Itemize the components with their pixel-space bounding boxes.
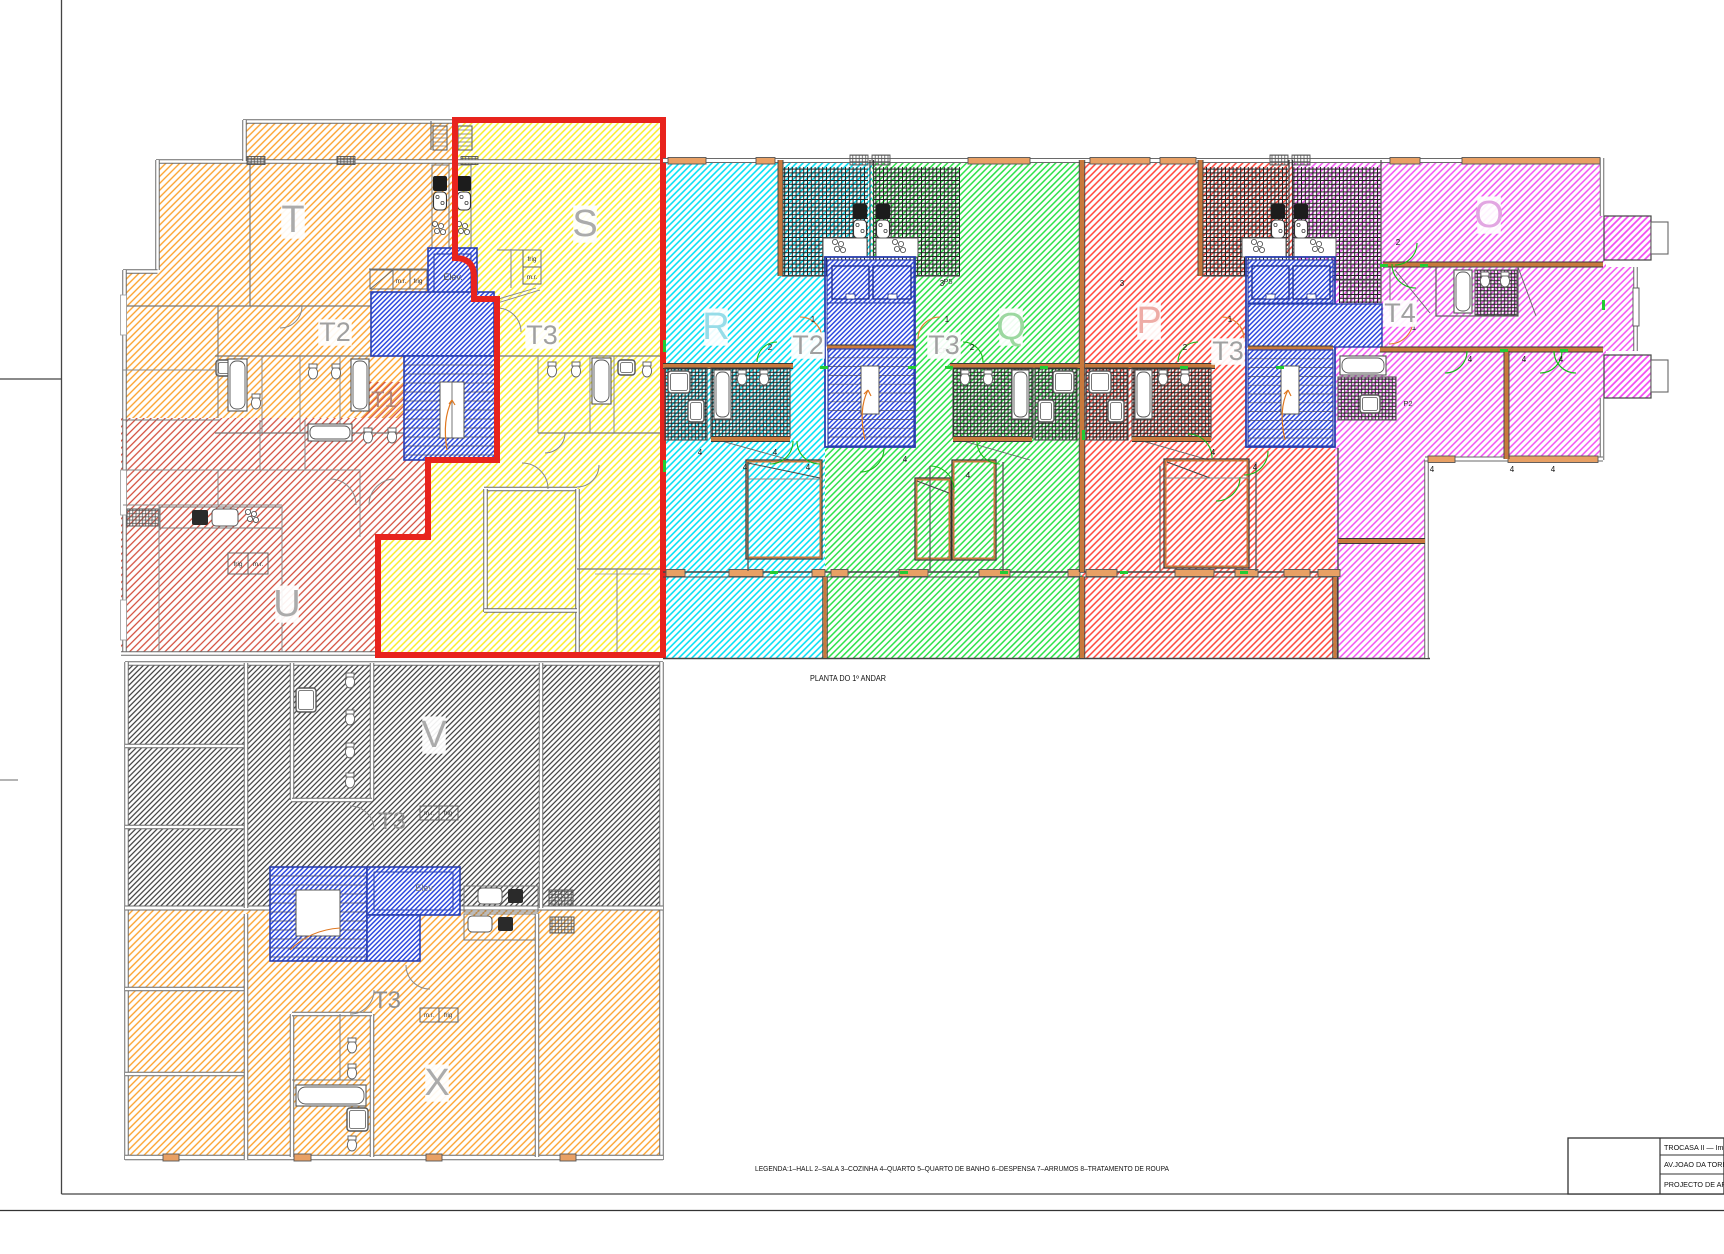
svg-text:3: 3 [940, 279, 945, 288]
svg-text:m.r.: m.r. [527, 274, 538, 281]
svg-text:frig: frig [444, 1013, 452, 1019]
svg-text:T2: T2 [319, 317, 351, 347]
svg-text:4: 4 [903, 455, 908, 464]
svg-text:V: V [421, 714, 447, 756]
svg-text:T1: T1 [371, 387, 397, 412]
svg-text:frig: frig [527, 256, 536, 263]
svg-text:m.r.: m.r. [424, 1013, 434, 1019]
svg-text:O: O [1474, 194, 1504, 236]
svg-text:2: 2 [970, 343, 975, 352]
svg-text:frig: frig [233, 561, 242, 568]
svg-text:X: X [424, 1062, 449, 1104]
svg-text:1: 1 [945, 315, 950, 324]
svg-text:2: 2 [768, 343, 773, 352]
svg-text:P2: P2 [1403, 399, 1412, 408]
svg-text:T: T [281, 199, 304, 241]
svg-text:T4: T4 [1384, 298, 1416, 328]
svg-text:TROCASA II — Imo: TROCASA II — Imo [1664, 1143, 1724, 1152]
svg-text:T2: T2 [792, 330, 824, 360]
svg-text:4: 4 [1551, 465, 1556, 474]
svg-text:P: P [1136, 300, 1161, 342]
svg-text:Elev.: Elev. [443, 272, 462, 282]
svg-text:4: 4 [806, 463, 811, 472]
svg-text:T3: T3 [1212, 336, 1244, 366]
svg-text:R: R [702, 306, 729, 348]
svg-text:m.r.: m.r. [396, 278, 407, 285]
svg-text:4: 4 [966, 471, 971, 480]
svg-text:T3: T3 [378, 808, 406, 835]
svg-text:P5: P5 [943, 277, 952, 286]
svg-text:2: 2 [1183, 343, 1188, 352]
svg-text:2: 2 [1396, 238, 1401, 247]
svg-text:U: U [273, 583, 300, 625]
svg-text:4: 4 [1522, 355, 1527, 364]
svg-text:4: 4 [773, 448, 778, 457]
svg-text:T3: T3 [373, 987, 401, 1014]
svg-text:4: 4 [1559, 355, 1564, 364]
svg-text:S: S [572, 203, 597, 245]
svg-text:4: 4 [1211, 448, 1216, 457]
svg-text:m.r.: m.r. [424, 811, 434, 817]
svg-text:T3: T3 [526, 320, 558, 350]
svg-text:frig: frig [413, 278, 422, 285]
svg-text:frig: frig [444, 811, 452, 817]
svg-text:1: 1 [811, 315, 816, 324]
svg-text:4: 4 [1430, 465, 1435, 474]
svg-text:4: 4 [743, 463, 748, 472]
svg-text:Elev.: Elev. [415, 883, 434, 893]
svg-text:4: 4 [698, 448, 703, 457]
svg-text:PLANTA DO 1º ANDAR: PLANTA DO 1º ANDAR [810, 674, 886, 683]
svg-text:4: 4 [1468, 355, 1473, 364]
svg-text:T3: T3 [928, 330, 960, 360]
svg-text:LEGENDA:1–HALL 2–SALA 3–COZI: LEGENDA:1–HALL 2–SALA 3–COZINHA 4–QUARTO… [755, 1164, 1169, 1173]
svg-text:Q: Q [996, 306, 1026, 348]
svg-text:3: 3 [1120, 279, 1125, 288]
svg-text:PROJECTO DE ARQ: PROJECTO DE ARQ [1664, 1180, 1724, 1189]
svg-text:1: 1 [1228, 315, 1233, 324]
svg-text:4: 4 [1253, 463, 1258, 472]
svg-text:m.r.: m.r. [253, 561, 264, 568]
svg-text:AV.JOAO DA TORRE: AV.JOAO DA TORRE [1664, 1160, 1724, 1169]
svg-text:4: 4 [1510, 465, 1515, 474]
